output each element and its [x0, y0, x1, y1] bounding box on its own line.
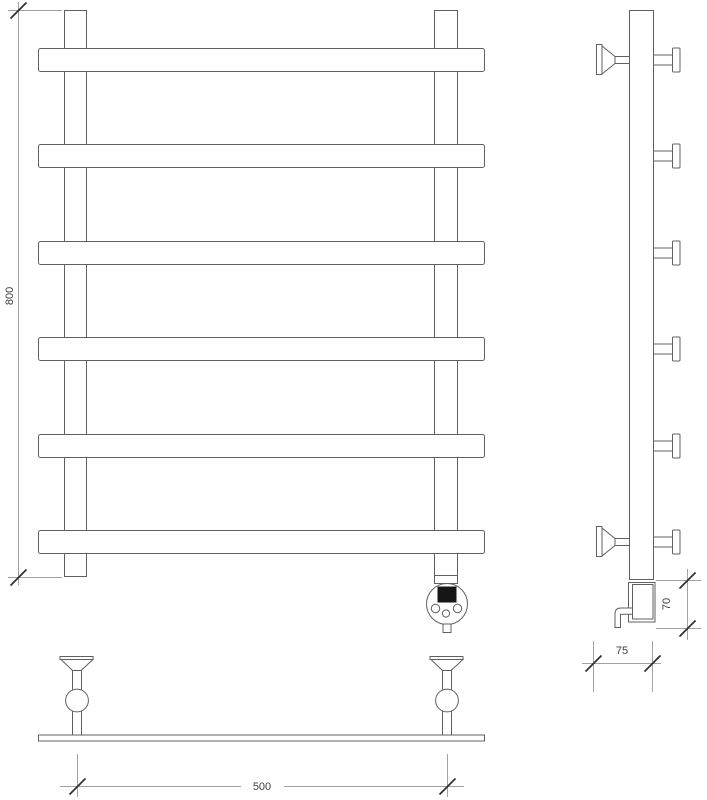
dimension-element-height: 70	[656, 569, 701, 640]
bar-stub	[654, 144, 681, 168]
towel-bar	[39, 531, 485, 554]
depth-dimension-label: 75	[616, 645, 628, 657]
dimension-depth: 75	[582, 641, 661, 692]
dimension-height: 800	[4, 2, 62, 586]
towel-bar	[39, 242, 485, 265]
element-tab	[443, 624, 451, 633]
bar-end-cap	[673, 337, 681, 361]
bracket-cone	[431, 660, 463, 671]
bracket-cone	[61, 660, 93, 671]
towel-bar	[39, 49, 485, 72]
towel-rail-drawing: 800	[0, 0, 707, 800]
height-dimension-label: 800	[4, 287, 16, 305]
towel-bar	[39, 145, 485, 168]
dimension-width: 500	[60, 754, 464, 797]
plan-view: 500	[39, 657, 485, 798]
element-housing-inner	[633, 585, 654, 620]
bar-stub	[654, 434, 681, 458]
bar-stub	[654, 337, 681, 361]
bracket-stem	[73, 671, 82, 691]
front-view: 800	[4, 2, 485, 633]
towel-bar	[39, 435, 485, 458]
bracket-wall-plate	[597, 45, 603, 75]
bracket-stem	[443, 710, 452, 736]
post-section	[66, 689, 89, 712]
bar-end-cap	[673, 434, 681, 458]
bar-end-cap	[673, 48, 681, 72]
bar-end-cap	[673, 144, 681, 168]
element-button	[453, 604, 461, 612]
width-dimension-label: 500	[253, 781, 271, 793]
bar-stub	[654, 530, 681, 554]
wall-bracket-side-bottom	[597, 527, 630, 557]
heating-element-front	[427, 576, 468, 633]
heating-element-side	[615, 583, 655, 628]
towel-bar	[39, 338, 485, 361]
element-button	[442, 610, 449, 617]
wall-bracket-plan-right	[430, 657, 463, 736]
bar-end-cap	[673, 241, 681, 265]
bracket-cone	[602, 46, 615, 74]
side-post	[630, 11, 654, 580]
bar-stub	[654, 241, 681, 265]
element-height-dimension-label: 70	[661, 598, 673, 610]
post-section	[436, 689, 459, 712]
technical-drawing-page: 800	[0, 0, 707, 800]
right-post	[435, 11, 458, 584]
left-post	[65, 11, 87, 577]
element-button	[431, 604, 439, 612]
bracket-wall-plate	[597, 527, 603, 557]
bar-end-cap	[673, 530, 681, 554]
bracket-cone	[602, 528, 615, 556]
bracket-stem	[73, 710, 82, 736]
bar-stub	[654, 48, 681, 72]
side-view: 70 75	[582, 11, 701, 693]
wall-bracket-plan-left	[60, 657, 93, 736]
element-display	[438, 587, 456, 602]
towel-bar-plan	[39, 735, 485, 741]
bracket-stem	[443, 671, 452, 691]
wall-bracket-side-top	[597, 45, 630, 75]
